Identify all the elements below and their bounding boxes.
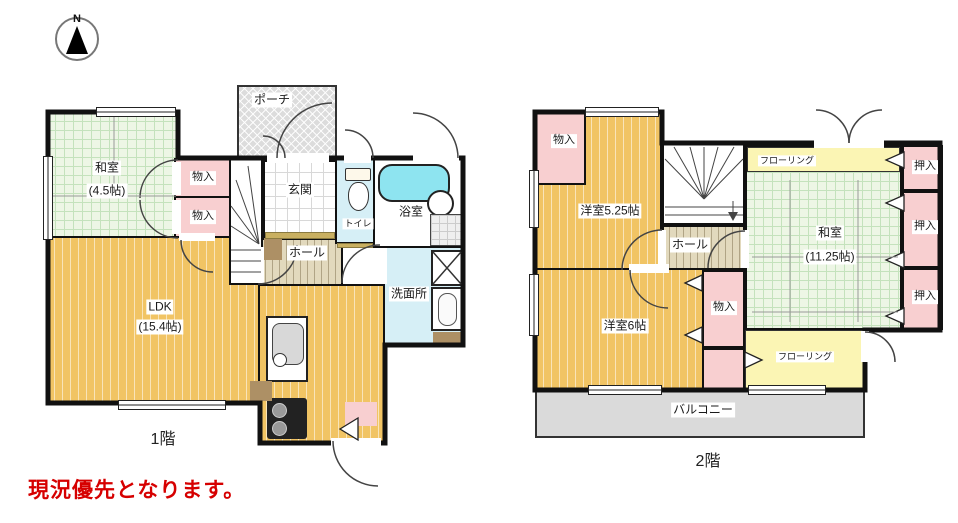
label-balcony: バルコニー [671,403,735,418]
label-closet-a: 押入 [912,160,938,174]
label-porch: ポーチ [252,93,292,108]
label-washitsu-2f: 和室 [816,226,844,241]
label-storage-a-1f: 物入 [190,171,216,185]
label-washitsu-1f: 和室 [93,161,121,176]
wall-stub [250,381,272,401]
label-washroom: 洗面所 [389,287,429,302]
balcony-sliding-door [588,385,662,395]
compass-needle-icon [66,26,88,54]
room-storage-top-2f [535,112,586,185]
label-closet-c: 押入 [912,290,938,304]
floor1-title: 1階 [151,425,176,449]
label-bath: 浴室 [397,205,425,220]
room-genkan [263,160,337,240]
label-ldk-size: (15.4帖) [136,320,183,335]
label-ldk: LDK [146,300,173,315]
label-western-6: 洋室6帖 [602,319,649,334]
disclaimer-note: 現況優先となります。 [28,474,245,504]
toilet-threshold [337,243,373,248]
window [43,156,53,240]
compass-icon: N [55,17,99,61]
window [96,107,176,117]
label-closet-b: 押入 [912,220,938,234]
kitchen-counter [266,316,308,382]
staircase-2f [662,143,745,225]
label-hall-1f: ホール [287,246,327,261]
balcony-sliding-door [748,385,826,395]
label-genkan: 玄関 [286,183,314,198]
hall-passage-1f [341,244,383,286]
label-flooring-south: フローリング [776,351,834,362]
label-washitsu-1f-size: (4.5帖) [87,184,128,199]
label-flooring-north: フローリング [758,155,816,166]
kitchen-closet [345,402,377,426]
window [118,400,226,410]
floorplan-canvas: N [0,0,958,523]
genkan-step [265,232,335,239]
toilet-bowl [348,182,369,211]
washroom-cabinet [433,332,463,346]
stove-burner [272,421,287,436]
washing-machine-space [431,250,463,286]
bath-tile-floor [430,214,462,246]
label-washitsu-2f-size: (11.25帖) [803,250,856,265]
stove [267,398,307,439]
staircase-1f [229,158,263,285]
toilet-tank [345,168,371,181]
vanity-basin [438,293,457,326]
label-storage-mid-2f: 物入 [711,301,737,315]
stove-burner [272,403,287,418]
floor2-title: 2階 [696,447,721,471]
window [585,107,659,117]
label-storage-top-2f: 物入 [551,134,577,148]
bath-stool [427,190,454,217]
wall-stub [264,238,282,260]
compass-north-label: N [73,13,81,25]
label-storage-b-1f: 物入 [190,210,216,224]
label-toilet: トイレ [342,218,373,229]
window [529,170,539,228]
window [529,274,539,336]
label-western-525: 洋室5.25帖 [578,204,641,219]
vanity-unit [431,287,463,331]
closet-lower-2f [702,348,745,390]
kitchen-faucet [273,353,287,367]
label-hall-2f: ホール [670,238,710,253]
